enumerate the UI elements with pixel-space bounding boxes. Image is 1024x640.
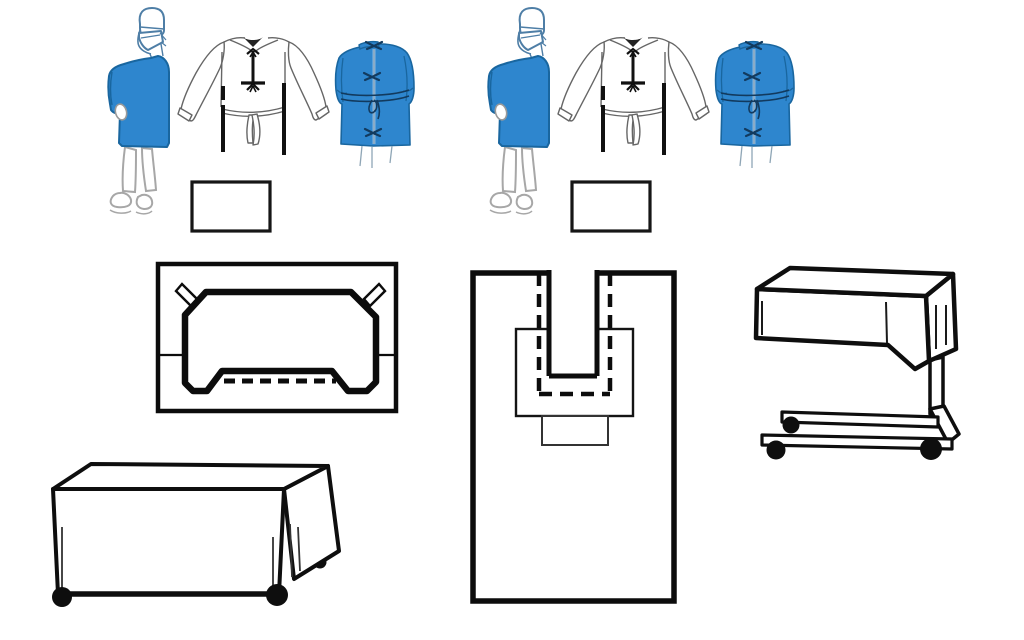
fenestrated-drape-icon (158, 264, 396, 411)
gown-set-right (488, 8, 794, 231)
medical-illustration-page (0, 0, 1024, 640)
tray-top-face (757, 268, 953, 296)
split-opening (552, 271, 595, 374)
cover-front-face (756, 289, 929, 369)
table-drape-front-face (53, 489, 284, 594)
gown-set-left (108, 8, 414, 231)
caster-wheel (52, 587, 72, 607)
caster-wheel (767, 441, 786, 460)
back-table-cover-icon (52, 464, 339, 607)
caster-wheel (920, 438, 942, 460)
upper-base-bar (782, 412, 938, 427)
caster-wheel (783, 417, 800, 434)
patch-tab (542, 416, 608, 445)
table-top-face (53, 464, 328, 489)
u-split-drape-icon (473, 270, 674, 601)
caster-wheel (266, 584, 288, 606)
mayo-stand-cover-icon (756, 268, 959, 460)
illustration-canvas (0, 0, 1024, 640)
